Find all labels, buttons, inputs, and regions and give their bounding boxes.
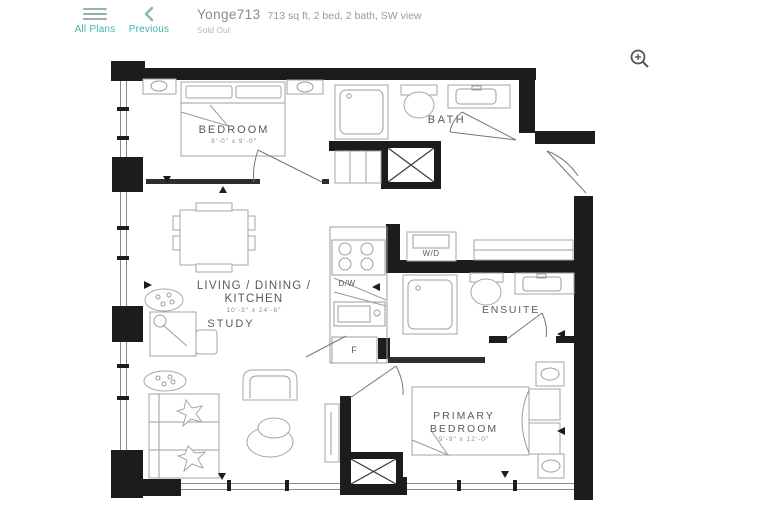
primary-label-line2: BEDROOM (430, 423, 498, 435)
primary-dims: 9'-9" x 12'-0" (439, 436, 489, 443)
shaft-lower (344, 452, 403, 491)
all-plans-label: All Plans (67, 24, 123, 35)
side-table (145, 289, 183, 311)
zoom-in-icon (628, 47, 652, 71)
hall-closet (335, 151, 381, 183)
plan-subtitle: 713 sq ft, 2 bed, 2 bath, SW view (268, 10, 422, 22)
study-label: STUDY (207, 318, 254, 330)
window-wall-left (117, 62, 129, 497)
shower (403, 275, 457, 334)
washer-dryer-label: W/D (422, 249, 439, 258)
sofa (149, 394, 219, 478)
floorplan: BEDROOM 8'-0" x 9'-0" BATH LIVING / DINI… (106, 52, 600, 504)
primary-label-line1: PRIMARY (433, 410, 495, 422)
side-table (144, 371, 186, 391)
vanity-sink (448, 85, 510, 108)
floorplan-canvas[interactable]: BEDROOM 8'-0" x 9'-0" BATH LIVING / DINI… (106, 52, 600, 504)
bath-fixtures (335, 85, 510, 139)
dining-table (173, 203, 255, 272)
shower (335, 85, 388, 139)
entry-closet (474, 240, 573, 260)
living-label-line1: LIVING / DINING / (197, 280, 311, 292)
coffee-table (247, 418, 293, 457)
zoom-in-button[interactable] (628, 47, 652, 71)
desk-chair (196, 330, 217, 354)
previous-button[interactable]: Previous (121, 6, 177, 35)
fridge-label: F (351, 345, 357, 355)
previous-label: Previous (121, 24, 177, 35)
bedroom-dims: 8'-0" x 9'-0" (211, 138, 257, 145)
bath-label: BATH (428, 114, 467, 126)
all-plans-button[interactable]: All Plans (67, 6, 123, 35)
nightstand (536, 362, 564, 386)
living-label-line2: KITCHEN (225, 293, 284, 305)
bedroom-label: BEDROOM (199, 124, 270, 136)
living-dims: 10'-3" x 24'-6" (227, 307, 282, 314)
chevron-left-icon (121, 6, 177, 22)
entry-door-swing (547, 151, 586, 193)
ensuite-label: ENSUITE (482, 304, 540, 316)
status-badge: Sold Out (197, 25, 422, 35)
dishwasher-label: D/W (338, 279, 355, 288)
page-title: Yonge713 (197, 7, 261, 22)
tv-console (325, 404, 339, 462)
menu-icon (67, 6, 123, 22)
ensuite-door-swing (507, 313, 547, 339)
armchair (243, 370, 297, 400)
shaft-upper (381, 141, 441, 189)
plan-header: Yonge713 713 sq ft, 2 bed, 2 bath, SW vi… (197, 7, 422, 35)
